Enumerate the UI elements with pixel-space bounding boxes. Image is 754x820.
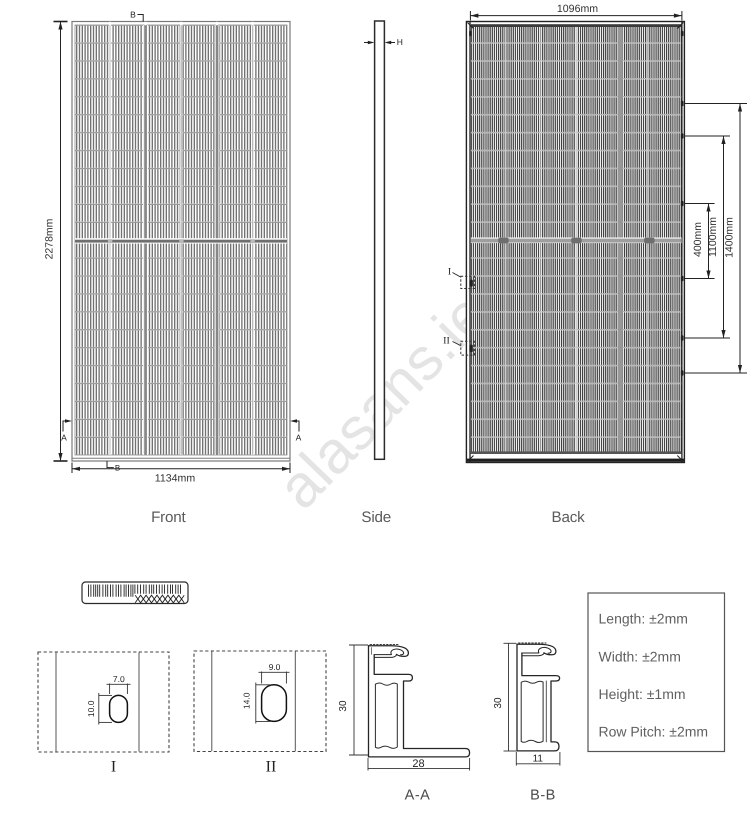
svg-text:9.0: 9.0 bbox=[269, 662, 281, 672]
svg-text:1100mm: 1100mm bbox=[707, 217, 719, 257]
svg-text:I: I bbox=[448, 267, 451, 278]
svg-text:A-A: A-A bbox=[405, 788, 431, 804]
svg-text:II: II bbox=[266, 759, 277, 776]
svg-text:7.0: 7.0 bbox=[113, 674, 125, 684]
svg-text:14.0: 14.0 bbox=[242, 692, 252, 709]
svg-text:Height: ±1mm: Height: ±1mm bbox=[599, 686, 686, 702]
svg-text:A: A bbox=[296, 433, 302, 443]
svg-text:400mm: 400mm bbox=[692, 222, 704, 257]
svg-text:1096mm: 1096mm bbox=[557, 3, 598, 15]
svg-text:30: 30 bbox=[338, 700, 349, 712]
svg-text:B: B bbox=[130, 10, 136, 20]
svg-text:A: A bbox=[61, 433, 67, 443]
svg-text:B: B bbox=[115, 464, 120, 473]
svg-text:11: 11 bbox=[533, 754, 544, 765]
svg-text:Side: Side bbox=[361, 509, 391, 526]
svg-text:1400mm: 1400mm bbox=[724, 217, 736, 258]
svg-text:II: II bbox=[443, 336, 450, 347]
svg-text:Width: ±2mm: Width: ±2mm bbox=[599, 649, 681, 665]
svg-text:Length: ±2mm: Length: ±2mm bbox=[599, 611, 688, 627]
svg-text:1134mm: 1134mm bbox=[155, 472, 196, 484]
svg-text:H: H bbox=[397, 37, 403, 47]
svg-text:B-B: B-B bbox=[530, 788, 556, 804]
svg-text:Front: Front bbox=[151, 509, 186, 526]
svg-text:30: 30 bbox=[493, 697, 504, 709]
svg-text:Back: Back bbox=[552, 509, 586, 526]
svg-text:10.0: 10.0 bbox=[86, 700, 96, 717]
svg-text:2278mm: 2278mm bbox=[44, 218, 56, 259]
svg-text:Row Pitch: ±2mm: Row Pitch: ±2mm bbox=[599, 724, 709, 740]
svg-text:28: 28 bbox=[412, 758, 424, 770]
svg-text:I: I bbox=[111, 759, 116, 776]
